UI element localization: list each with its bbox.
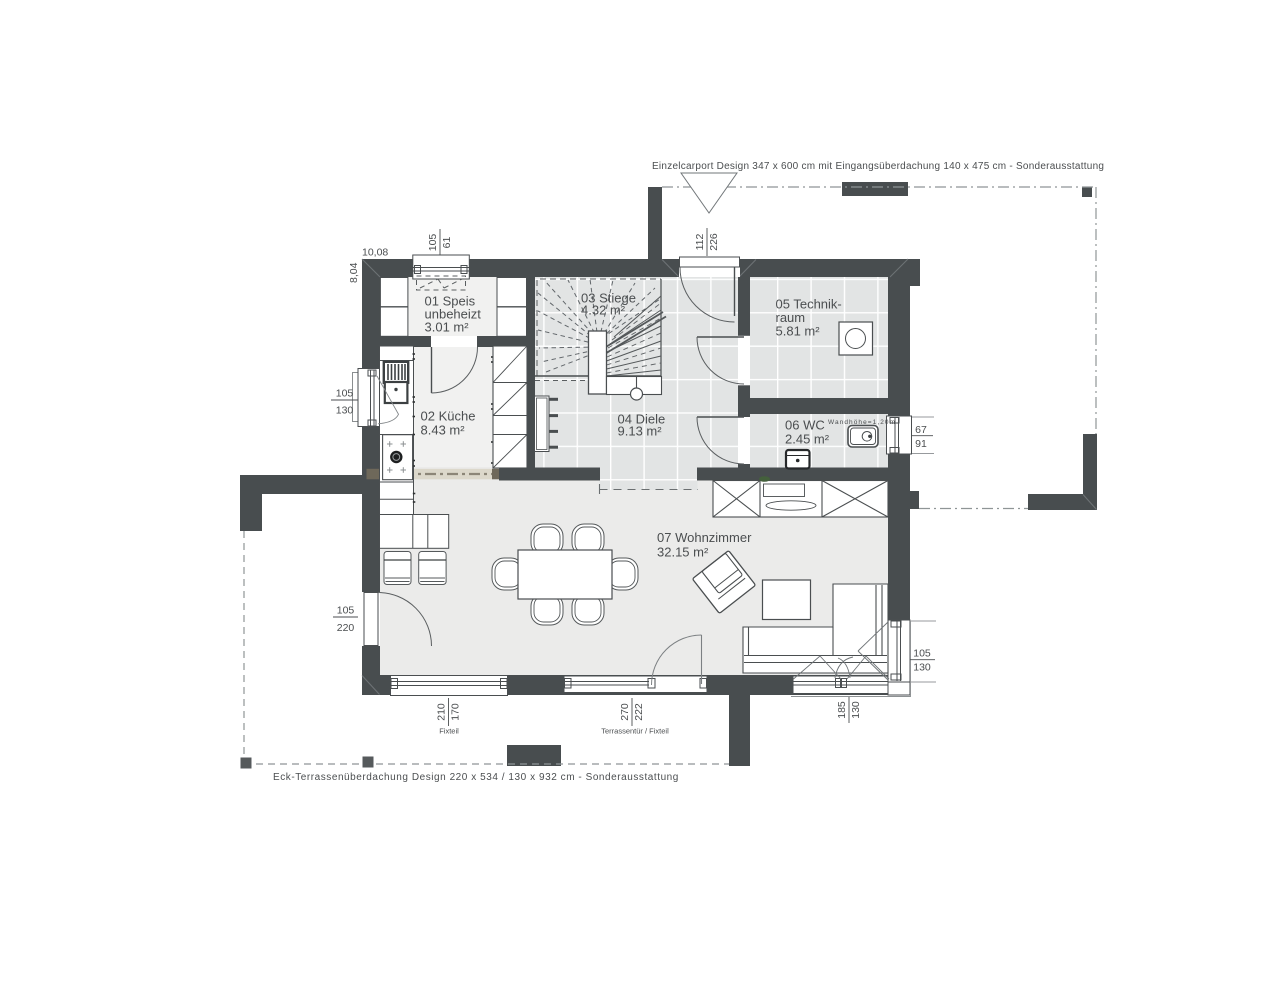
- svg-text:67: 67: [915, 424, 927, 436]
- svg-text:02 Küche: 02 Küche: [421, 409, 476, 424]
- svg-text:4.32 m²: 4.32 m²: [581, 303, 626, 318]
- svg-text:2.45 m²: 2.45 m²: [785, 432, 830, 447]
- svg-text:Terrassentür / Fixteil: Terrassentür / Fixteil: [601, 727, 669, 736]
- svg-text:8.43 m²: 8.43 m²: [421, 423, 466, 438]
- svg-text:105: 105: [336, 388, 354, 400]
- svg-text:3.01 m²: 3.01 m²: [425, 320, 470, 335]
- svg-text:9.13 m²: 9.13 m²: [618, 424, 663, 439]
- svg-text:Wandhöhe=1,20m: Wandhöhe=1,20m: [828, 419, 895, 426]
- svg-text:61: 61: [441, 237, 453, 249]
- svg-text:91: 91: [915, 438, 927, 450]
- svg-text:130: 130: [336, 405, 354, 417]
- svg-text:Einzelcarport Design 347 x 600: Einzelcarport Design 347 x 600 cm mit Ei…: [652, 161, 1104, 172]
- svg-text:5.81 m²: 5.81 m²: [776, 324, 821, 339]
- svg-text:130: 130: [913, 662, 931, 674]
- svg-text:105: 105: [913, 648, 931, 660]
- svg-text:105: 105: [337, 605, 355, 617]
- svg-text:220: 220: [337, 622, 355, 634]
- svg-text:32.15 m²: 32.15 m²: [657, 545, 709, 560]
- svg-text:270: 270: [619, 703, 631, 721]
- svg-text:105: 105: [427, 234, 439, 252]
- svg-text:222: 222: [633, 703, 645, 721]
- svg-text:Fixteil: Fixteil: [439, 727, 459, 736]
- svg-text:130: 130: [850, 701, 862, 719]
- svg-text:8,04: 8,04: [348, 262, 360, 283]
- svg-text:170: 170: [450, 703, 462, 721]
- svg-text:07 Wohnzimmer: 07 Wohnzimmer: [657, 530, 752, 545]
- svg-text:210: 210: [436, 703, 448, 721]
- svg-text:10,08: 10,08: [362, 247, 388, 259]
- svg-text:185: 185: [836, 701, 848, 719]
- svg-text:Eck-Terrassenüberdachung Desig: Eck-Terrassenüberdachung Design 220 x 53…: [273, 772, 679, 783]
- svg-text:112: 112: [694, 233, 706, 250]
- svg-text:226: 226: [708, 233, 720, 251]
- svg-text:06 WC: 06 WC: [785, 418, 825, 433]
